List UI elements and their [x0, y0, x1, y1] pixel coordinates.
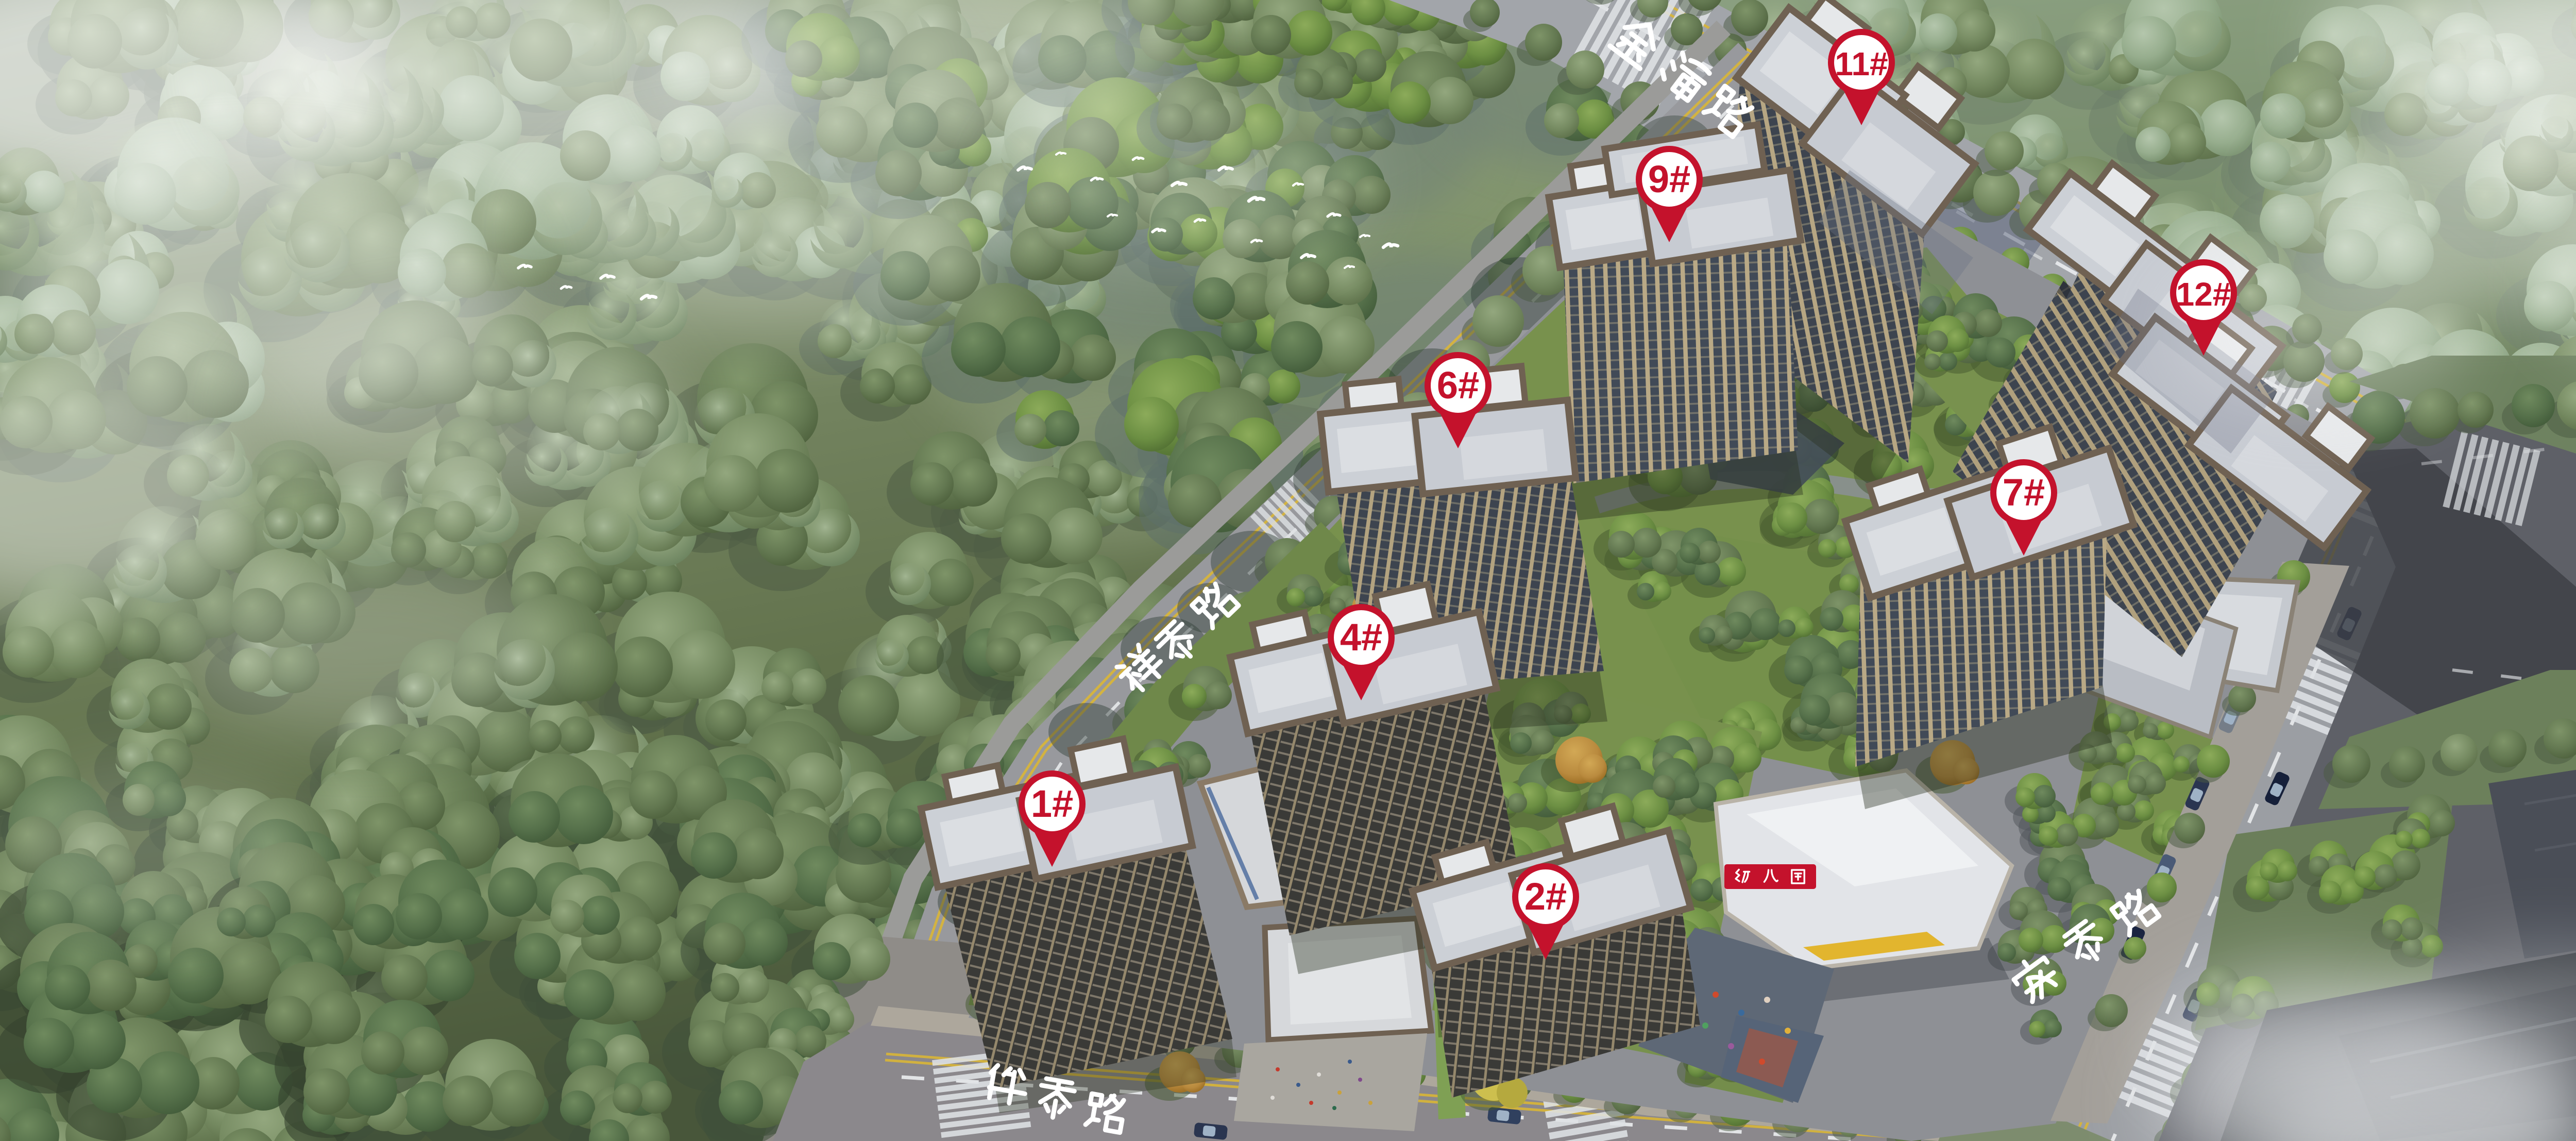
svg-text:9#: 9#: [1648, 158, 1690, 200]
svg-text:7#: 7#: [2003, 471, 2045, 514]
svg-text:12#: 12#: [2176, 276, 2231, 313]
svg-text:4#: 4#: [1340, 616, 1382, 659]
svg-text:1#: 1#: [1031, 782, 1073, 825]
svg-text:11#: 11#: [1835, 45, 1888, 82]
svg-text:2#: 2#: [1524, 875, 1567, 918]
svg-text:6#: 6#: [1437, 364, 1479, 407]
